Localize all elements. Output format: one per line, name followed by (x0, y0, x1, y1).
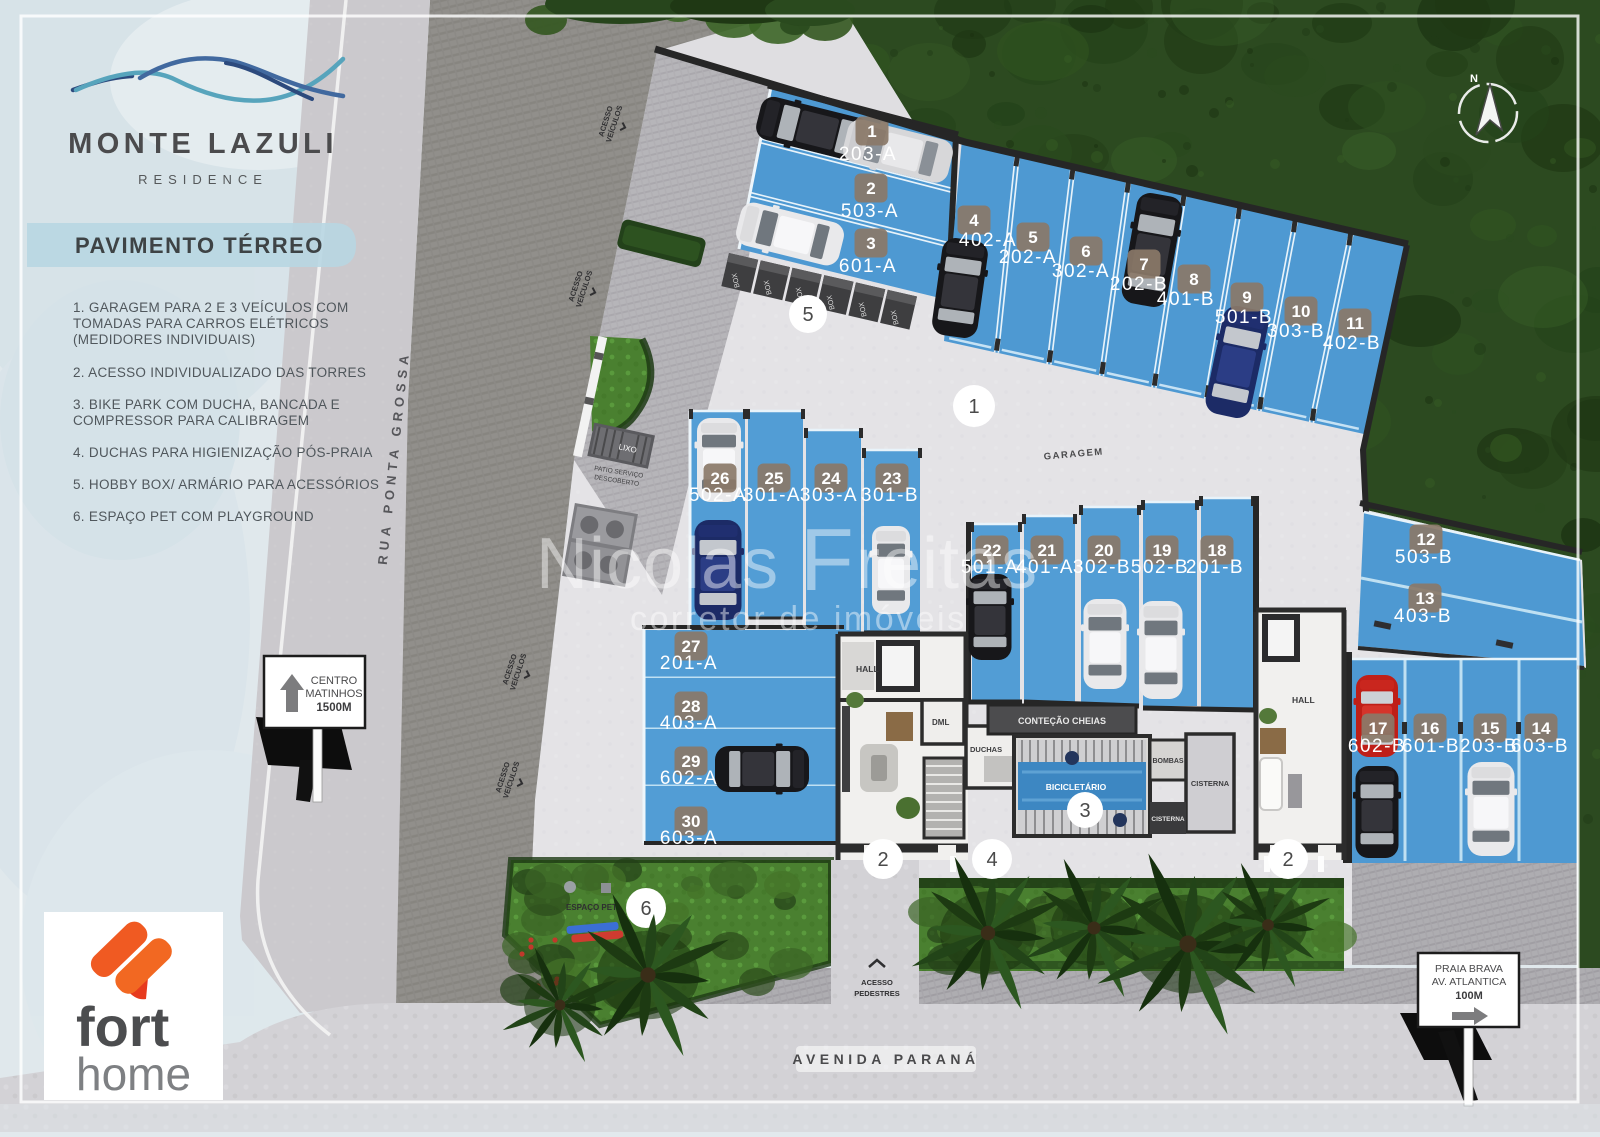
svg-text:3: 3 (866, 234, 875, 253)
svg-text:CISTERNA: CISTERNA (1151, 816, 1185, 823)
svg-text:302-A: 302-A (1052, 261, 1110, 282)
svg-text:603-B: 603-B (1511, 736, 1569, 757)
svg-text:2: 2 (1282, 849, 1293, 871)
svg-text:MONTE LAZULI: MONTE LAZULI (68, 128, 338, 160)
svg-text:401-B: 401-B (1157, 289, 1215, 310)
svg-text:403-B: 403-B (1394, 606, 1452, 627)
svg-text:2. ACESSO INDIVIDUALIZADO DAS: 2. ACESSO INDIVIDUALIZADO DAS TORRES (73, 365, 366, 380)
svg-text:402-B: 402-B (1323, 333, 1381, 354)
svg-text:302-B: 302-B (1073, 557, 1131, 578)
svg-text:503-B: 503-B (1395, 547, 1453, 568)
svg-text:1: 1 (968, 396, 979, 418)
svg-text:502-B: 502-B (1131, 557, 1189, 578)
svg-text:(MEDIDORES INDIVIDUAIS): (MEDIDORES INDIVIDUAIS) (73, 332, 255, 347)
svg-text:203-B: 203-B (1460, 736, 1518, 757)
svg-text:corretor de imóveis: corretor de imóveis (630, 600, 967, 638)
svg-text:601-B: 601-B (1402, 736, 1460, 757)
svg-text:TOMADAS PARA CARROS ELÉTRICOS: TOMADAS PARA CARROS ELÉTRICOS (73, 316, 329, 331)
svg-text:HALL: HALL (1292, 695, 1315, 705)
svg-text:PEDESTRES: PEDESTRES (854, 989, 899, 998)
svg-text:602-A: 602-A (660, 768, 718, 789)
svg-text:303-A: 303-A (800, 485, 858, 506)
svg-text:AV. ATLANTICA: AV. ATLANTICA (1432, 976, 1507, 988)
svg-text:502-A: 502-A (689, 485, 747, 506)
svg-text:203-A: 203-A (839, 144, 897, 165)
svg-text:PAVIMENTO TÉRREO: PAVIMENTO TÉRREO (75, 233, 324, 258)
svg-text:5: 5 (1028, 228, 1037, 247)
svg-text:CISTERNA: CISTERNA (1191, 779, 1230, 788)
svg-text:6: 6 (1081, 242, 1090, 261)
svg-text:11: 11 (1346, 314, 1364, 333)
svg-text:AVENIDA PARANÁ: AVENIDA PARANÁ (792, 1051, 979, 1067)
svg-text:201-A: 201-A (660, 653, 718, 674)
svg-text:CONTEÇÃO CHEIAS: CONTEÇÃO CHEIAS (1018, 716, 1106, 726)
svg-text:10: 10 (1292, 302, 1311, 321)
svg-text:F: F (800, 510, 854, 609)
svg-text:1. GARAGEM PARA 2 E 3 VEÍCULOS: 1. GARAGEM PARA 2 E 3 VEÍCULOS COM (73, 300, 349, 315)
svg-text:6: 6 (640, 898, 651, 920)
svg-text:601-A: 601-A (839, 256, 897, 277)
svg-text:4: 4 (986, 849, 997, 871)
svg-text:N: N (1470, 73, 1478, 85)
svg-text:2: 2 (866, 179, 875, 198)
svg-text:PRAIA BRAVA: PRAIA BRAVA (1435, 963, 1503, 975)
svg-text:303-B: 303-B (1267, 321, 1325, 342)
svg-text:5. HOBBY BOX/ ARMÁRIO PARA ACE: 5. HOBBY BOX/ ARMÁRIO PARA ACESSÓRIOS (73, 477, 379, 492)
svg-text:reitas: reitas (856, 524, 1038, 604)
svg-text:ESPAÇO PET: ESPAÇO PET (566, 903, 617, 912)
svg-text:3. BIKE PARK COM DUCHA, BANCAD: 3. BIKE PARK COM DUCHA, BANCADA E (73, 397, 340, 412)
svg-text:1: 1 (867, 122, 876, 141)
svg-text:602-B: 602-B (1348, 736, 1406, 757)
svg-text:100M: 100M (1455, 990, 1483, 1002)
svg-text:4: 4 (969, 211, 979, 230)
svg-text:6. ESPAÇO PET COM PLAYGROUND: 6. ESPAÇO PET COM PLAYGROUND (73, 509, 314, 524)
svg-text:Nicolas: Nicolas (536, 524, 779, 604)
svg-text:DML: DML (932, 718, 949, 727)
svg-text:DUCHAS: DUCHAS (970, 745, 1002, 754)
svg-text:403-A: 403-A (660, 713, 718, 734)
svg-text:2: 2 (877, 849, 888, 871)
svg-text:9: 9 (1242, 288, 1251, 307)
svg-text:603-A: 603-A (660, 828, 718, 849)
svg-text:7: 7 (1139, 255, 1148, 274)
svg-text:3: 3 (1079, 800, 1090, 822)
svg-text:RESIDENCE: RESIDENCE (138, 172, 268, 187)
svg-text:home: home (76, 1048, 191, 1100)
svg-text:202-A: 202-A (999, 247, 1057, 268)
svg-text:BOMBAS: BOMBAS (1152, 758, 1183, 765)
svg-text:301-B: 301-B (861, 485, 919, 506)
svg-text:ACESSO: ACESSO (861, 978, 893, 987)
svg-text:301-A: 301-A (743, 485, 801, 506)
svg-text:1500M: 1500M (316, 702, 351, 714)
svg-text:503-A: 503-A (841, 201, 899, 222)
svg-text:4. DUCHAS PARA HIGIENIZAÇÃO PÓ: 4. DUCHAS PARA HIGIENIZAÇÃO PÓS-PRAIA (73, 445, 373, 460)
svg-text:201-B: 201-B (1186, 557, 1244, 578)
svg-text:CENTRO: CENTRO (311, 675, 358, 687)
svg-text:5: 5 (802, 304, 813, 326)
svg-text:HALL: HALL (856, 664, 879, 674)
svg-text:BICICLETÁRIO: BICICLETÁRIO (1046, 782, 1107, 792)
svg-text:501-B: 501-B (1215, 307, 1273, 328)
svg-text:COMPRESSOR PARA CALIBRAGEM: COMPRESSOR PARA CALIBRAGEM (73, 413, 309, 428)
svg-text:8: 8 (1189, 270, 1198, 289)
svg-text:MATINHOS: MATINHOS (305, 688, 362, 700)
